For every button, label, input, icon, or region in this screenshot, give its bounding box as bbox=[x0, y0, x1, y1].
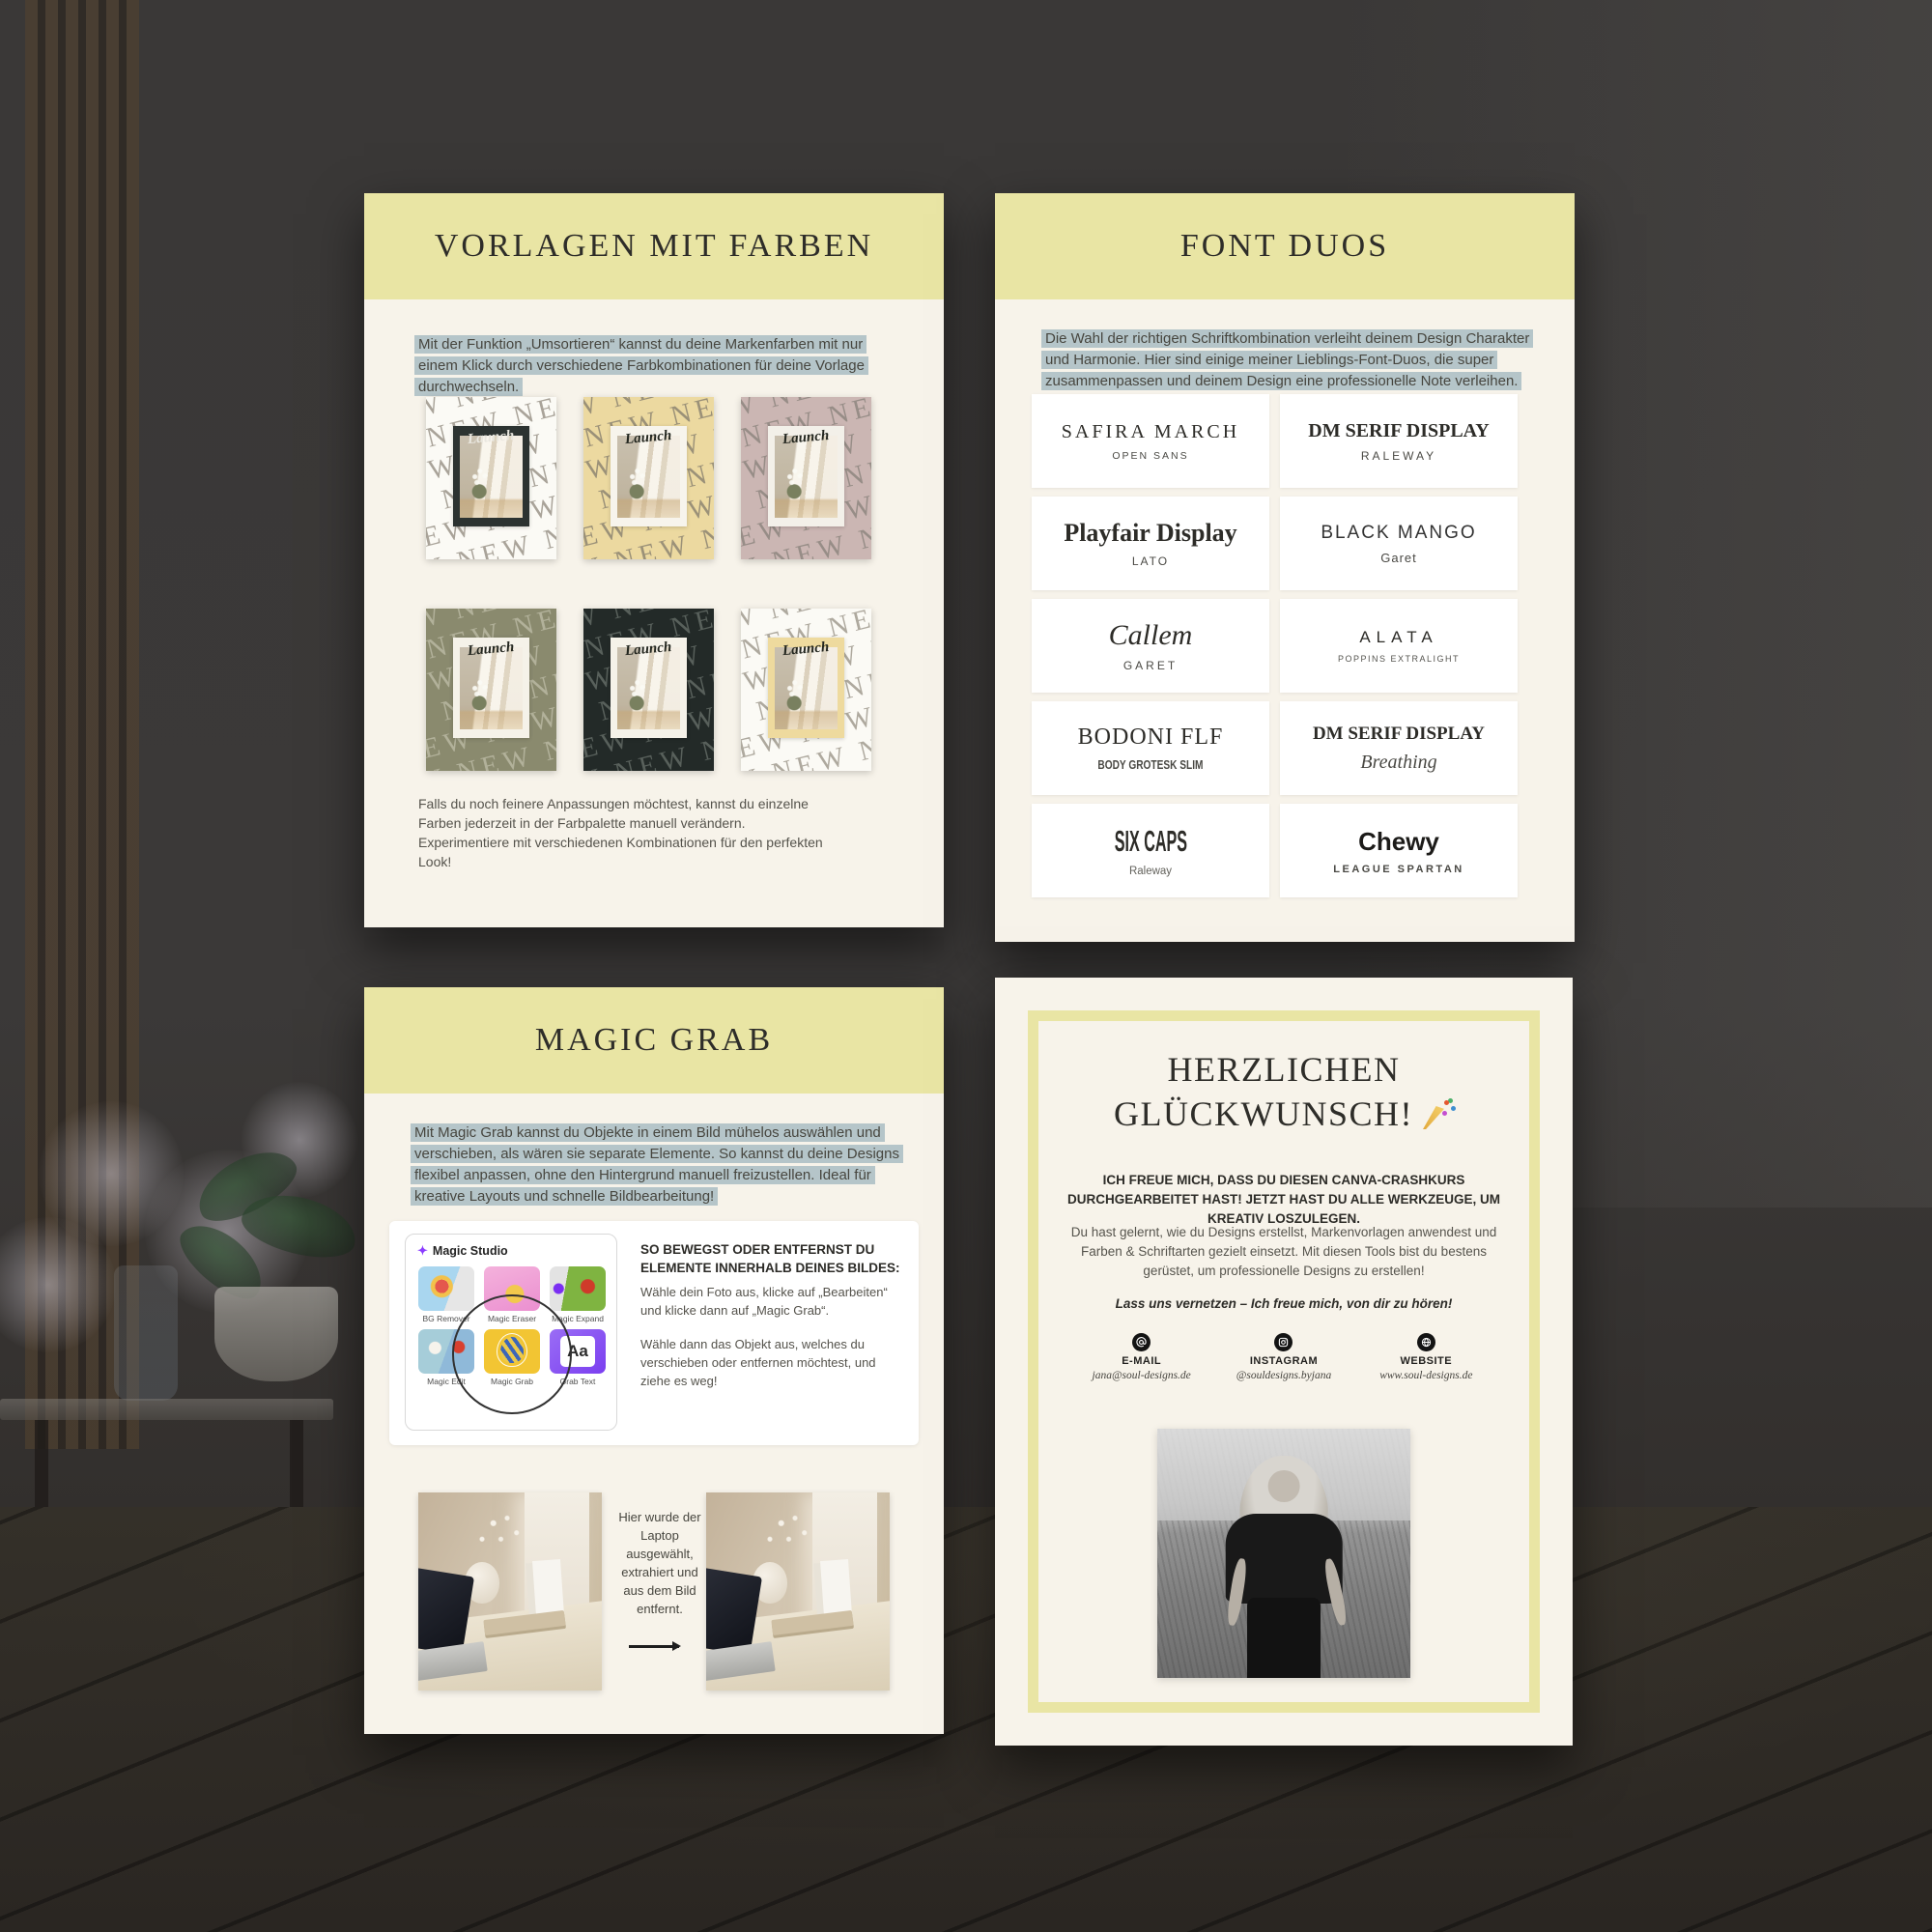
magic-studio-header: Magic Studio bbox=[417, 1243, 605, 1259]
font-duo-card: CallemGARET bbox=[1032, 599, 1269, 693]
after-image-desk bbox=[706, 1492, 890, 1690]
font-duo-secondary: Garet bbox=[1380, 551, 1417, 565]
page4-title: HERZLICHEN GLÜCKWUNSCH! bbox=[995, 1047, 1573, 1136]
page2-intro: Die Wahl der richtigen Schriftkombinatio… bbox=[1041, 328, 1536, 392]
inner-frame: Launch bbox=[453, 426, 528, 526]
contact-label: WEBSITE bbox=[1355, 1355, 1497, 1367]
font-duo-primary: DM SERIF DISPLAY bbox=[1313, 724, 1485, 745]
flower-branch bbox=[469, 1504, 532, 1568]
font-duo-primary: BODONI FLF bbox=[1078, 724, 1224, 751]
template-white-dark-frame: NEW NEW NEW NEW NEW NEW NEW NEW NEW NEW … bbox=[426, 397, 556, 559]
bg-remover-icon bbox=[418, 1266, 474, 1311]
font-duo-card: SIX CAPSRaleway bbox=[1032, 804, 1269, 897]
template-dark-white-frame: NEW NEW NEW NEW NEW NEW NEW NEW NEW NEW … bbox=[583, 609, 714, 771]
font-duo-secondary: Raleway bbox=[1129, 866, 1172, 877]
wood-floor bbox=[0, 1507, 1932, 1932]
before-image-desk-with-laptop bbox=[418, 1492, 602, 1690]
font-duo-primary: DM SERIF DISPLAY bbox=[1308, 420, 1489, 442]
standing-books bbox=[532, 1559, 563, 1616]
font-duo-primary: BLACK MANGO bbox=[1321, 523, 1476, 544]
magic-grab-panel: Magic Studio BG RemoverMagic EraserMagic… bbox=[389, 1221, 919, 1445]
contact-value: jana@soul-designs.de bbox=[1070, 1370, 1212, 1381]
contact-row: E-MAILjana@soul-designs.deINSTAGRAM@soul… bbox=[1070, 1333, 1497, 1381]
contact-value: www.soul-designs.de bbox=[1355, 1370, 1497, 1381]
page3-title: MAGIC GRAB bbox=[535, 1022, 773, 1059]
before-after-section: Hier wurde der Laptop ausgewählt, extrah… bbox=[418, 1492, 890, 1695]
inner-frame: Launch bbox=[768, 638, 843, 738]
font-duo-secondary: Breathing bbox=[1360, 752, 1436, 774]
contact-website: WEBSITEwww.soul-designs.de bbox=[1355, 1333, 1497, 1381]
font-duo-primary: Chewy bbox=[1358, 827, 1439, 857]
howto-step-1: Wähle dein Foto aus, klicke auf „Bearbei… bbox=[640, 1283, 903, 1320]
website-icon bbox=[1417, 1333, 1435, 1351]
email-icon bbox=[1132, 1333, 1151, 1351]
font-duo-secondary: LATO bbox=[1132, 554, 1169, 568]
font-duo-primary: SIX CAPS bbox=[1114, 824, 1186, 859]
page1-title: VORLAGEN MIT FARBEN bbox=[435, 228, 873, 265]
font-duo-secondary: GARET bbox=[1123, 659, 1178, 672]
page4-cta: Lass uns vernetzen – Ich freue mich, von… bbox=[1034, 1296, 1534, 1311]
inner-frame: Launch bbox=[611, 426, 686, 526]
contact-value: @souldesigns.byjana bbox=[1212, 1370, 1354, 1381]
template-yellow-white-frame: NEW NEW NEW NEW NEW NEW NEW NEW NEW NEW … bbox=[583, 397, 714, 559]
font-duo-secondary: RALEWAY bbox=[1361, 449, 1436, 463]
font-duo-secondary: POPPINS EXTRALIGHT bbox=[1338, 654, 1460, 664]
sparkle-icon bbox=[417, 1243, 428, 1259]
font-duo-card: SAFIRA MARCHOPEN SANS bbox=[1032, 394, 1269, 488]
page-vorlagen-mit-farben: VORLAGEN MIT FARBEN Mit der Funktion „Um… bbox=[364, 193, 944, 927]
page1-intro: Mit der Funktion „Umsortieren“ kannst du… bbox=[414, 334, 902, 398]
template-olive-white-frame: NEW NEW NEW NEW NEW NEW NEW NEW NEW NEW … bbox=[426, 609, 556, 771]
font-duo-card: DM SERIF DISPLAYRALEWAY bbox=[1280, 394, 1518, 488]
page4-body: Du hast gelernt, wie du Designs erstells… bbox=[1055, 1223, 1513, 1281]
portrait-photo bbox=[1157, 1429, 1410, 1678]
magic-grab-annotation-circle bbox=[452, 1294, 572, 1414]
arrow-right-icon bbox=[629, 1645, 679, 1648]
contact-email: E-MAILjana@soul-designs.de bbox=[1070, 1333, 1212, 1381]
inner-frame: Launch bbox=[611, 638, 686, 738]
font-duo-card: ALATAPOPPINS EXTRALIGHT bbox=[1280, 599, 1518, 693]
page3-header-band: MAGIC GRAB bbox=[364, 987, 944, 1094]
contact-instagram: INSTAGRAM@souldesigns.byjana bbox=[1212, 1333, 1354, 1381]
before-after-caption: Hier wurde der Laptop ausgewählt, extrah… bbox=[615, 1508, 704, 1618]
contact-label: E-MAIL bbox=[1070, 1355, 1212, 1367]
template-grid: NEW NEW NEW NEW NEW NEW NEW NEW NEW NEW … bbox=[426, 397, 871, 771]
plant-pot bbox=[214, 1287, 338, 1381]
font-duo-primary: ALATA bbox=[1359, 628, 1437, 647]
font-duo-grid: SAFIRA MARCHOPEN SANSDM SERIF DISPLAYRAL… bbox=[1032, 394, 1518, 897]
font-duo-primary: Callem bbox=[1109, 619, 1193, 652]
page3-intro: Mit Magic Grab kannst du Objekte in eine… bbox=[411, 1122, 908, 1207]
font-duo-card: BODONI FLFBODY GROTESK SLIM bbox=[1032, 701, 1269, 795]
inner-frame: Launch bbox=[768, 426, 843, 526]
party-popper-icon bbox=[1421, 1098, 1454, 1131]
template-white-yellow-frame: NEW NEW NEW NEW NEW NEW NEW NEW NEW NEW … bbox=[741, 609, 871, 771]
instagram-icon bbox=[1274, 1333, 1293, 1351]
page1-header-band: VORLAGEN MIT FARBEN bbox=[364, 193, 944, 299]
magic-studio-screenshot: Magic Studio BG RemoverMagic EraserMagic… bbox=[405, 1234, 617, 1431]
photo-legs bbox=[1247, 1598, 1321, 1678]
inner-frame: Launch bbox=[453, 638, 528, 738]
contact-label: INSTAGRAM bbox=[1212, 1355, 1354, 1367]
page4-lead: ICH FREUE MICH, DASS DU DIESEN CANVA-CRA… bbox=[1059, 1171, 1509, 1229]
page-font-duos: FONT DUOS Die Wahl der richtigen Schrift… bbox=[995, 193, 1575, 942]
font-duo-secondary: LEAGUE SPARTAN bbox=[1333, 864, 1463, 875]
font-duo-secondary: OPEN SANS bbox=[1112, 450, 1188, 462]
page1-outro: Falls du noch feinere Anpassungen möchte… bbox=[418, 794, 834, 871]
standing-books bbox=[820, 1559, 851, 1616]
magic-expand-icon bbox=[550, 1266, 606, 1311]
page2-title: FONT DUOS bbox=[1180, 228, 1389, 265]
font-duo-card: Playfair DisplayLATO bbox=[1032, 497, 1269, 590]
howto-step-2: Wähle dann das Objekt aus, welches du ve… bbox=[640, 1335, 903, 1390]
page-magic-grab: MAGIC GRAB Mit Magic Grab kannst du Obje… bbox=[364, 987, 944, 1734]
howto-heading: SO BEWEGST ODER ENTFERNST DU ELEMENTE IN… bbox=[640, 1240, 903, 1277]
font-duo-card: DM SERIF DISPLAYBreathing bbox=[1280, 701, 1518, 795]
howto-text: SO BEWEGST ODER ENTFERNST DU ELEMENTE IN… bbox=[640, 1240, 903, 1406]
flower-branch bbox=[757, 1504, 820, 1568]
page2-header-band: FONT DUOS bbox=[995, 193, 1575, 299]
font-duo-primary: Playfair Display bbox=[1064, 519, 1236, 548]
font-duo-card: ChewyLEAGUE SPARTAN bbox=[1280, 804, 1518, 897]
font-duo-card: BLACK MANGOGaret bbox=[1280, 497, 1518, 590]
font-duo-primary: SAFIRA MARCH bbox=[1062, 421, 1239, 443]
photo-face bbox=[1268, 1470, 1300, 1503]
page-glueckwunsch: HERZLICHEN GLÜCKWUNSCH! ICH FREUE MICH, … bbox=[995, 978, 1573, 1746]
room-background bbox=[0, 0, 1932, 1932]
font-duo-secondary: BODY GROTESK SLIM bbox=[1097, 757, 1203, 772]
template-mauve-white-frame: NEW NEW NEW NEW NEW NEW NEW NEW NEW NEW … bbox=[741, 397, 871, 559]
side-table bbox=[0, 1399, 333, 1420]
glass-vase bbox=[114, 1265, 178, 1401]
